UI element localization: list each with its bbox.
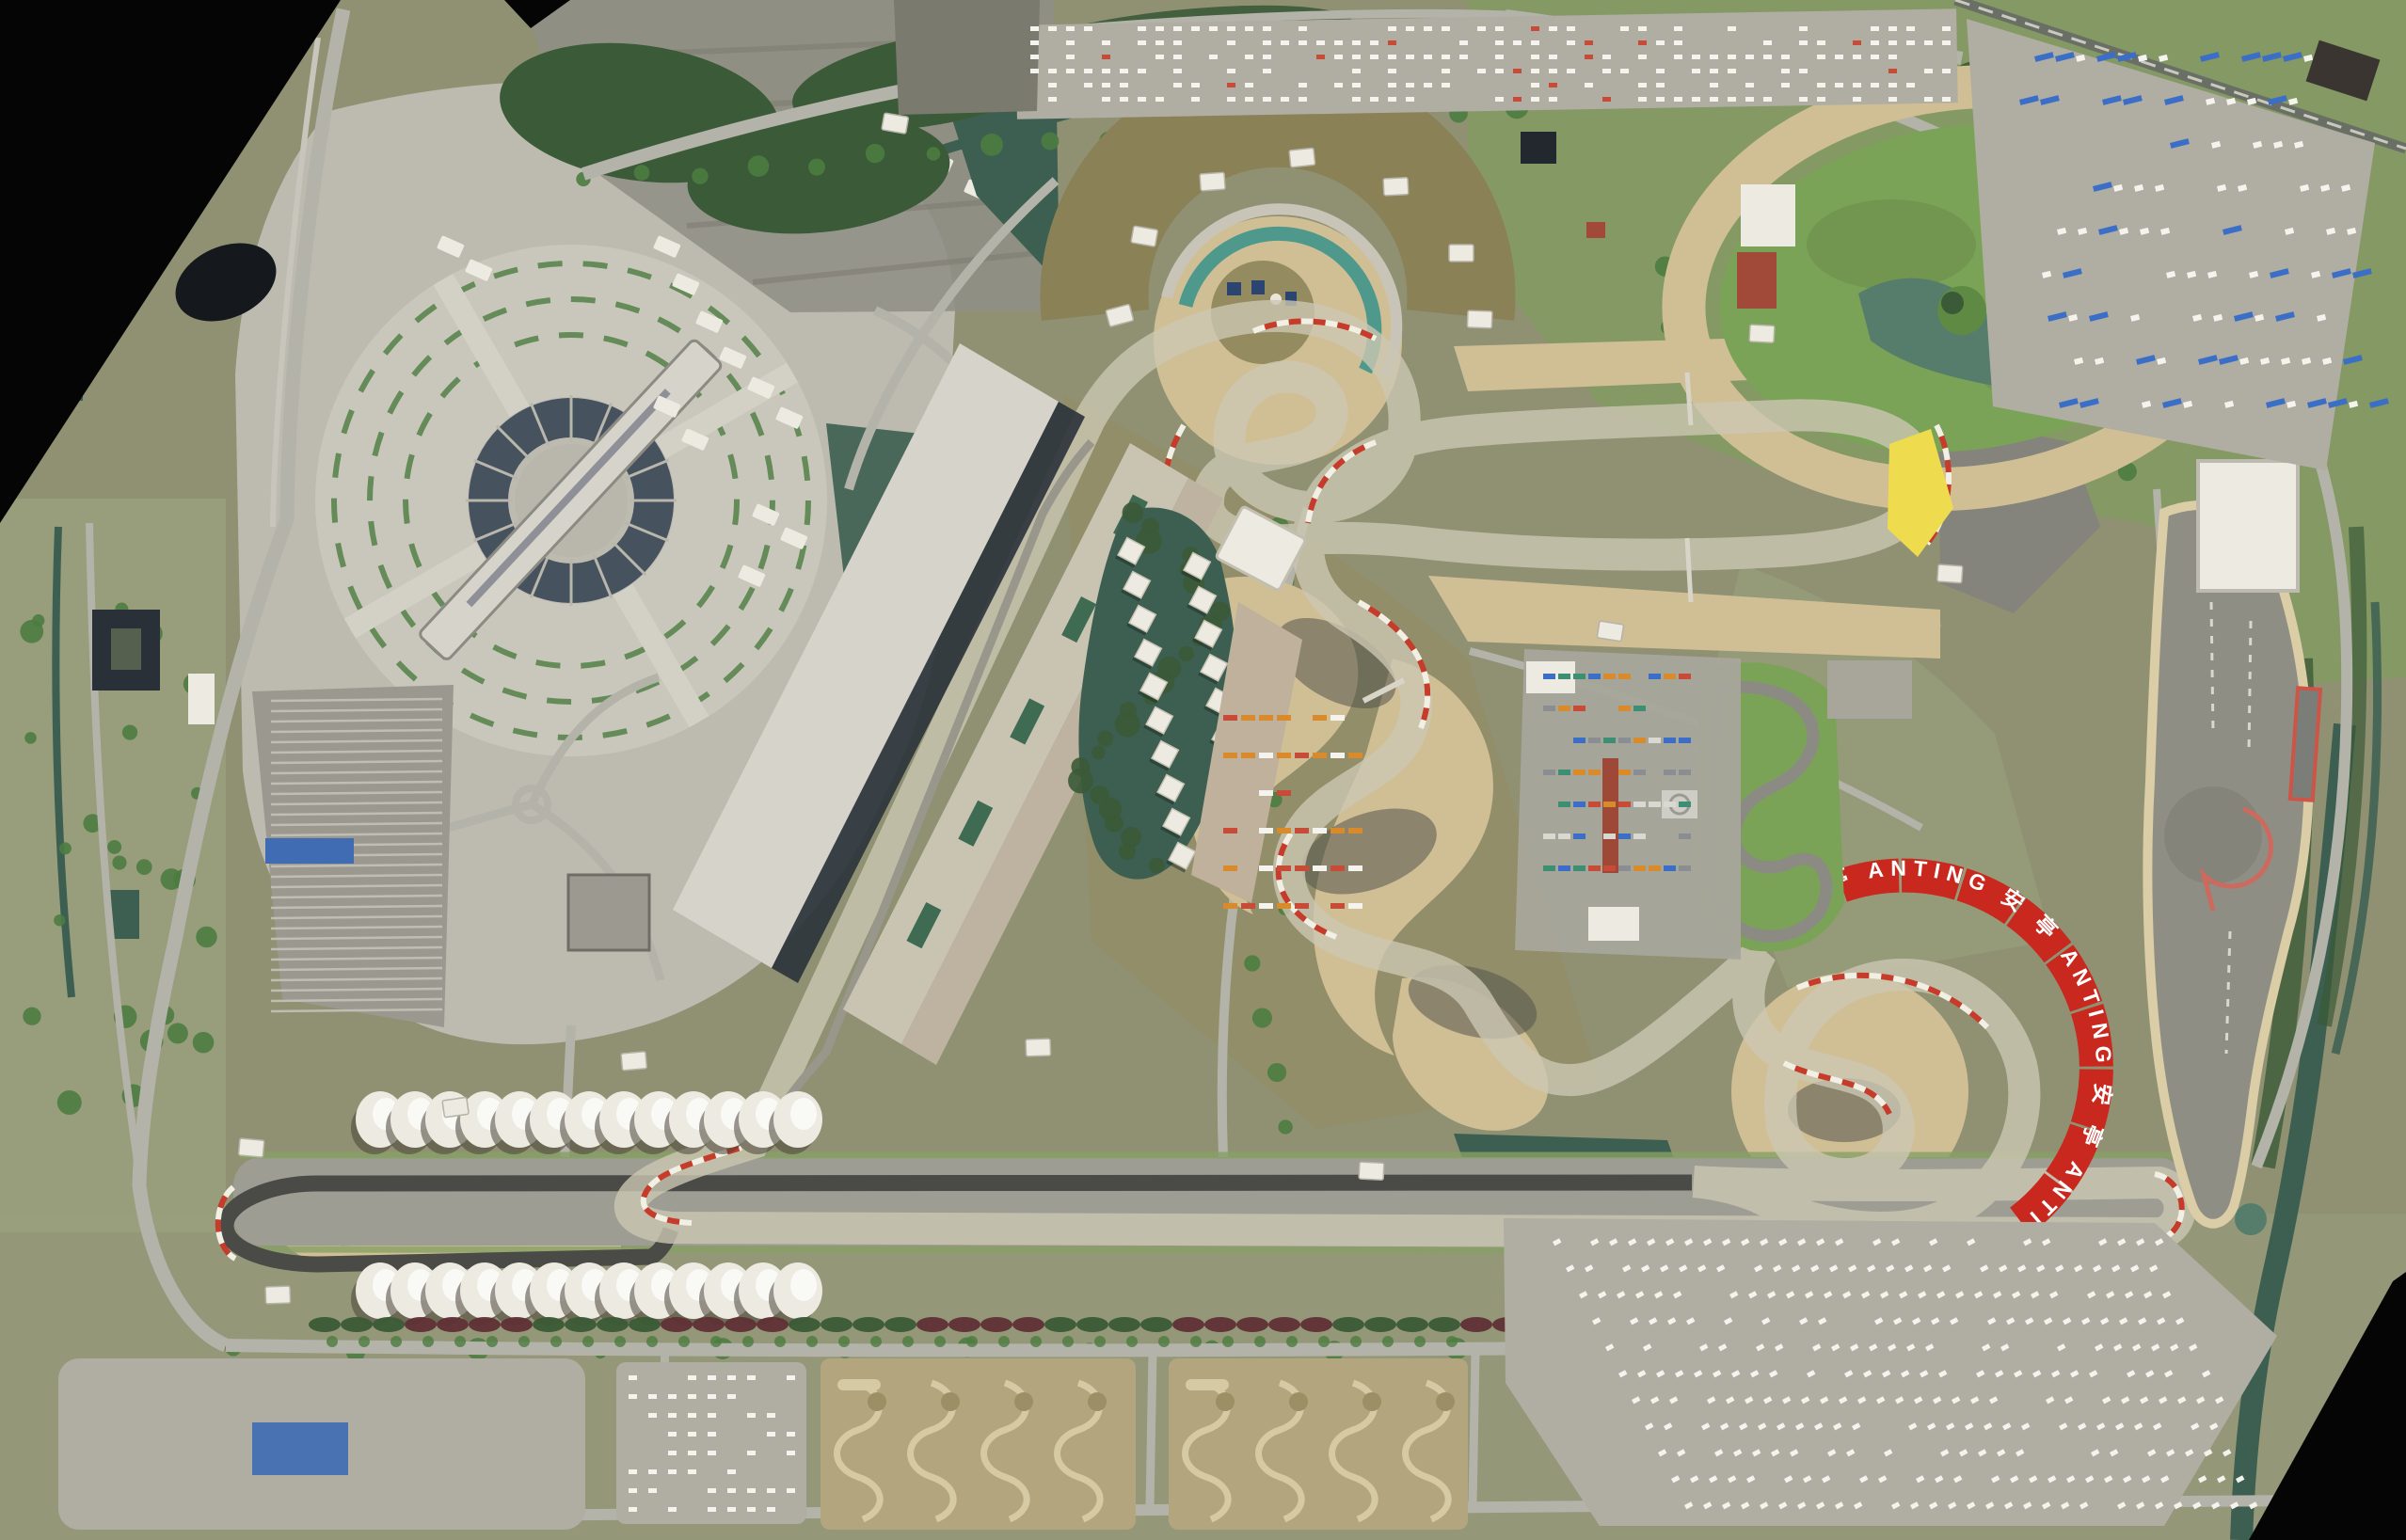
car [747, 1375, 756, 1380]
car [1728, 26, 1736, 31]
tree-hedge [852, 1317, 884, 1332]
car [1585, 55, 1593, 59]
tree [518, 1336, 530, 1347]
tree [1350, 1336, 1362, 1347]
tree [748, 155, 770, 177]
car [1084, 83, 1092, 87]
car [1030, 69, 1039, 73]
container [1543, 674, 1555, 679]
support-truck [1223, 865, 1237, 871]
support-truck [1313, 828, 1327, 834]
car [1459, 55, 1468, 59]
car [1549, 26, 1557, 31]
container [1679, 802, 1691, 807]
container [1618, 674, 1631, 679]
car [1227, 83, 1235, 87]
red-hedge [437, 1317, 469, 1332]
tree [1179, 646, 1194, 661]
car [1281, 97, 1289, 102]
car [747, 1451, 756, 1455]
car [787, 1488, 795, 1493]
car [1442, 69, 1450, 73]
car [1531, 55, 1539, 59]
container [1664, 802, 1676, 807]
car [1763, 40, 1772, 45]
car [668, 1413, 677, 1418]
car [1763, 97, 1772, 102]
container [1603, 738, 1616, 743]
tree [1267, 1063, 1286, 1082]
container [1573, 674, 1585, 679]
car [1066, 69, 1075, 73]
support-truck [1295, 828, 1309, 834]
support-truck [1259, 828, 1273, 834]
support-truck [1295, 903, 1309, 909]
car [1799, 97, 1808, 102]
tree-hedge [1044, 1317, 1076, 1332]
tent-roof [1467, 310, 1492, 328]
car [1710, 97, 1718, 102]
car [1209, 55, 1218, 59]
north-lots [1015, 8, 1958, 119]
support-truck [1277, 715, 1291, 721]
tree-hedge [629, 1317, 661, 1332]
container [1633, 770, 1646, 775]
red-hedge [405, 1317, 437, 1332]
support-truck [1295, 753, 1309, 758]
tree [107, 840, 121, 854]
tree-hedge [373, 1317, 405, 1332]
car [1888, 55, 1897, 59]
dirt-mound [1088, 1392, 1107, 1411]
container [1588, 865, 1601, 871]
car [1674, 40, 1682, 45]
car [648, 1488, 657, 1493]
car [1638, 40, 1647, 45]
dirt-mound [1014, 1392, 1033, 1411]
support-truck [1259, 753, 1273, 758]
car [648, 1413, 657, 1418]
dirt-mound [1289, 1392, 1308, 1411]
tree [1446, 1336, 1458, 1347]
tree [1318, 1336, 1330, 1347]
support-truck [1277, 903, 1291, 909]
car [688, 1394, 696, 1399]
tree [167, 1023, 188, 1043]
container [1618, 706, 1631, 711]
tree [1042, 133, 1060, 151]
grey-facility [568, 875, 649, 950]
car [1155, 26, 1164, 31]
car [1817, 55, 1825, 59]
car [1442, 26, 1450, 31]
tent-roof [238, 1138, 263, 1157]
support-truck [1330, 903, 1345, 909]
red-hedge [980, 1317, 1012, 1332]
teardrop-pond-b [2235, 1203, 2267, 1235]
tree [1382, 1336, 1394, 1347]
tree [927, 147, 940, 160]
car [1120, 69, 1128, 73]
tree [327, 1336, 338, 1347]
tree-hedge [597, 1317, 629, 1332]
tree [934, 1336, 946, 1347]
dirt-mound [1436, 1392, 1455, 1411]
car [1531, 69, 1539, 73]
tree-hedge [1140, 1317, 1172, 1332]
tree [24, 732, 37, 744]
car [1442, 83, 1450, 87]
tree [614, 1336, 626, 1347]
car [1138, 69, 1146, 73]
car [1495, 69, 1504, 73]
car [1424, 26, 1432, 31]
container [1543, 770, 1555, 775]
tree [710, 1336, 722, 1347]
tree [454, 1336, 466, 1347]
tree [20, 620, 43, 643]
car [1853, 55, 1861, 59]
car [1853, 83, 1861, 87]
car [727, 1488, 736, 1493]
car [1728, 55, 1736, 59]
tree [838, 1336, 850, 1347]
car [787, 1451, 795, 1455]
car [1531, 97, 1539, 102]
car [708, 1507, 716, 1512]
car [1799, 40, 1808, 45]
car [708, 1488, 716, 1493]
car [1102, 69, 1110, 73]
car [727, 1469, 736, 1474]
tree [136, 859, 152, 875]
tree [1244, 955, 1260, 971]
container [1558, 802, 1570, 807]
car [1638, 97, 1647, 102]
red-hedge [948, 1317, 980, 1332]
car [1853, 97, 1861, 102]
office-courtyard [111, 628, 141, 670]
car [708, 1432, 716, 1437]
car [1888, 40, 1897, 45]
car [1245, 83, 1253, 87]
tree [966, 1336, 978, 1347]
car [1888, 83, 1897, 87]
car [1245, 26, 1253, 31]
satellite-canvas: 安 亭 ANTING 安 亭 ANTING 安 亭 ANTING [0, 0, 2406, 1540]
tree [870, 1336, 882, 1347]
white-annex [188, 674, 215, 724]
container [1543, 834, 1555, 839]
tree-hedge [884, 1317, 916, 1332]
car [1567, 40, 1575, 45]
container [1603, 834, 1616, 839]
container [1618, 834, 1631, 839]
tree-hedge [1428, 1317, 1460, 1332]
container [1679, 865, 1691, 871]
support-truck [1223, 828, 1237, 834]
car [1906, 26, 1915, 31]
tree [486, 1336, 498, 1347]
car [1567, 69, 1575, 73]
tree [359, 1336, 370, 1347]
car [648, 1469, 657, 1474]
car [747, 1507, 756, 1512]
dirt-mound [941, 1392, 960, 1411]
car [1245, 97, 1253, 102]
tree-hedge [341, 1317, 373, 1332]
tree-hedge [1364, 1317, 1396, 1332]
car [1585, 40, 1593, 45]
dirt-mound [1216, 1392, 1235, 1411]
red-hedge [916, 1317, 948, 1332]
tree [1068, 769, 1093, 794]
car [1299, 26, 1307, 31]
car [1155, 40, 1164, 45]
container [1573, 865, 1585, 871]
car [1817, 83, 1825, 87]
tree [634, 165, 650, 181]
car [1942, 40, 1951, 45]
car [1424, 55, 1432, 59]
tree [550, 1336, 562, 1347]
tree [23, 1008, 40, 1025]
container [1649, 674, 1661, 679]
container [1679, 770, 1691, 775]
car [1048, 69, 1057, 73]
car [1710, 69, 1718, 73]
car [629, 1469, 637, 1474]
car [1352, 97, 1361, 102]
car [1048, 97, 1057, 102]
car [1459, 40, 1468, 45]
car [1048, 26, 1057, 31]
container [1588, 674, 1601, 679]
gravel-lot [894, 0, 1040, 115]
car [1352, 55, 1361, 59]
red-hedge [501, 1317, 533, 1332]
car [1692, 55, 1700, 59]
tree-hedge [789, 1317, 821, 1332]
car [1299, 83, 1307, 87]
car [1531, 26, 1539, 31]
car [1942, 97, 1951, 102]
tree [1190, 1336, 1202, 1347]
tree [1254, 1336, 1266, 1347]
tree [692, 168, 708, 184]
car [1084, 69, 1092, 73]
tree-hedge [309, 1317, 341, 1332]
car [1334, 40, 1343, 45]
tree [1278, 1119, 1292, 1134]
support-truck [1348, 753, 1362, 758]
car [1263, 26, 1271, 31]
car [1924, 97, 1933, 102]
car [1531, 83, 1539, 87]
tree [582, 1336, 594, 1347]
long-red-building [1602, 758, 1618, 873]
car [1656, 83, 1665, 87]
car [1781, 83, 1790, 87]
white-building-oval [1741, 184, 1795, 246]
car [1674, 55, 1682, 59]
support-truck [1348, 865, 1362, 871]
car [1710, 55, 1718, 59]
car [1495, 97, 1504, 102]
tree-hedge [1332, 1317, 1364, 1332]
tree [1126, 1336, 1138, 1347]
red-hedge [1012, 1317, 1044, 1332]
car [1030, 40, 1039, 45]
car [1620, 26, 1629, 31]
car [1263, 55, 1271, 59]
dirt-mound [868, 1392, 886, 1411]
tree [122, 724, 137, 739]
car [1030, 55, 1039, 59]
tent-roof [1200, 172, 1225, 191]
car [1728, 69, 1736, 73]
container [1573, 834, 1585, 839]
car [1263, 40, 1271, 45]
container [1603, 865, 1616, 871]
car [1924, 40, 1933, 45]
car [1942, 69, 1951, 73]
car [1263, 97, 1271, 102]
tree [1158, 1336, 1170, 1347]
car [1173, 69, 1182, 73]
car [1048, 83, 1057, 87]
car [1871, 55, 1879, 59]
car [1227, 69, 1235, 73]
container [1679, 738, 1691, 743]
car [1871, 26, 1879, 31]
car [1942, 26, 1951, 31]
tree [1252, 1008, 1272, 1027]
car [1888, 69, 1897, 73]
car [1102, 55, 1110, 59]
car [1352, 40, 1361, 45]
car [1513, 40, 1522, 45]
car [1084, 26, 1092, 31]
warehouse-south [1588, 907, 1639, 941]
car [1173, 26, 1182, 31]
car [1191, 97, 1200, 102]
red-hedge [725, 1317, 757, 1332]
car [1817, 97, 1825, 102]
satellite-image-shanghai-circuit: 安 亭 ANTING 安 亭 ANTING 安 亭 ANTING [0, 0, 2406, 1540]
car [1710, 83, 1718, 87]
car [1674, 97, 1682, 102]
car [688, 1432, 696, 1437]
car [1513, 69, 1522, 73]
container [1664, 674, 1676, 679]
car [1388, 26, 1396, 31]
car [1835, 55, 1843, 59]
car [1567, 26, 1575, 31]
car [1531, 40, 1539, 45]
red-hedge [1172, 1317, 1204, 1332]
car [1781, 55, 1790, 59]
container [1664, 738, 1676, 743]
car [1799, 69, 1808, 73]
tent-roof [621, 1052, 646, 1071]
tree [646, 1336, 658, 1347]
container [1664, 865, 1676, 871]
oval-infield-mottle [1807, 199, 1976, 290]
container [1588, 738, 1601, 743]
car [787, 1375, 795, 1380]
car [1799, 26, 1808, 31]
support-truck [1313, 865, 1327, 871]
car [1781, 69, 1790, 73]
red-hedge [1204, 1317, 1236, 1332]
container [1679, 674, 1691, 679]
tree [1091, 746, 1106, 760]
tent-roof [1026, 1039, 1051, 1056]
container [1618, 738, 1631, 743]
support-truck [1277, 790, 1291, 796]
car [1745, 55, 1754, 59]
container [1543, 706, 1555, 711]
car [1620, 69, 1629, 73]
car [629, 1375, 637, 1380]
tree [742, 1336, 754, 1347]
car [1549, 97, 1557, 102]
car [1513, 97, 1522, 102]
container [1633, 834, 1646, 839]
car [1871, 40, 1879, 45]
car [1638, 26, 1647, 31]
car [1388, 40, 1396, 45]
car [1763, 55, 1772, 59]
car [1692, 69, 1700, 73]
tent-roof [1937, 564, 1963, 583]
car [668, 1469, 677, 1474]
support-truck [1259, 865, 1273, 871]
container [1679, 834, 1691, 839]
car [787, 1432, 795, 1437]
support-truck [1277, 828, 1291, 834]
car [1656, 97, 1665, 102]
car [1602, 55, 1611, 59]
kart-paddock [1827, 660, 1912, 719]
car [1495, 55, 1504, 59]
tree [193, 1032, 215, 1054]
car [1656, 69, 1665, 73]
car [1245, 55, 1253, 59]
car [1030, 26, 1039, 31]
tree [422, 1336, 434, 1347]
container [1618, 802, 1631, 807]
container [1618, 865, 1631, 871]
car [1924, 69, 1933, 73]
tree [866, 144, 884, 163]
container [1649, 802, 1661, 807]
car [668, 1394, 677, 1399]
car [708, 1375, 716, 1380]
car [629, 1394, 637, 1399]
car [1102, 97, 1110, 102]
course-pad [1186, 1379, 1229, 1390]
red-hedge [693, 1317, 725, 1332]
car [1674, 26, 1682, 31]
support-truck [1330, 715, 1345, 721]
car [727, 1394, 736, 1399]
car [1370, 55, 1378, 59]
tree-hedge [1076, 1317, 1108, 1332]
car [688, 1375, 696, 1380]
car [1102, 83, 1110, 87]
